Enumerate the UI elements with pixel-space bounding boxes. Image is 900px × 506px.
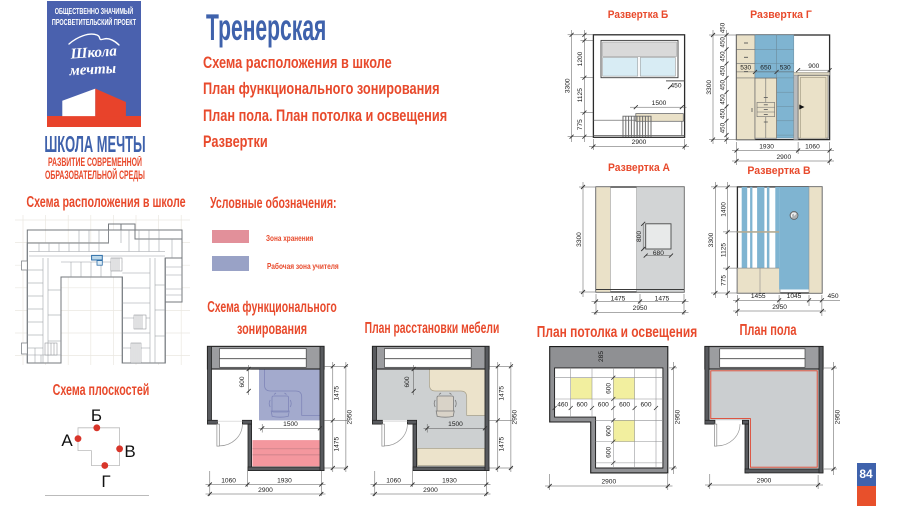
svg-text:600: 600: [404, 376, 411, 387]
svg-text:285: 285: [598, 351, 605, 362]
svg-text:600: 600: [239, 376, 246, 387]
svg-text:1475: 1475: [499, 386, 506, 401]
svg-text:775: 775: [577, 119, 584, 130]
svg-text:1060: 1060: [221, 477, 236, 484]
svg-text:1475: 1475: [334, 386, 341, 401]
svg-text:450: 450: [719, 79, 726, 90]
svg-text:450: 450: [719, 108, 726, 119]
svg-text:530: 530: [780, 65, 791, 72]
svg-text:1475: 1475: [611, 296, 626, 303]
svg-text:1500: 1500: [283, 421, 298, 428]
svg-text:1125: 1125: [577, 88, 584, 103]
svg-text:мечты: мечты: [68, 61, 116, 79]
svg-text:680: 680: [653, 250, 664, 257]
svg-text:1455: 1455: [751, 293, 766, 300]
svg-text:1200: 1200: [577, 51, 584, 66]
svg-text:450: 450: [719, 94, 726, 105]
svg-text:600: 600: [605, 383, 612, 394]
svg-text:2950: 2950: [835, 409, 842, 424]
svg-text:2900: 2900: [601, 479, 616, 486]
svg-text:450: 450: [827, 293, 838, 300]
svg-text:800: 800: [636, 231, 643, 242]
svg-text:450: 450: [670, 83, 681, 90]
svg-text:2950: 2950: [347, 409, 354, 424]
svg-text:1045: 1045: [787, 293, 802, 300]
svg-text:1930: 1930: [442, 477, 457, 484]
svg-text:3300: 3300: [706, 80, 713, 95]
svg-text:2950: 2950: [512, 409, 519, 424]
svg-text:3300: 3300: [576, 232, 583, 247]
svg-text:2900: 2900: [423, 487, 438, 494]
svg-text:2900: 2900: [632, 139, 647, 146]
svg-text:1930: 1930: [759, 143, 774, 150]
svg-text:2950: 2950: [633, 305, 648, 312]
svg-text:1125: 1125: [721, 243, 728, 258]
svg-text:1500: 1500: [652, 100, 667, 107]
svg-text:3300: 3300: [708, 232, 715, 247]
svg-text:600: 600: [640, 402, 651, 409]
svg-text:600: 600: [605, 425, 612, 436]
svg-text:650: 650: [760, 65, 771, 72]
svg-text:600: 600: [598, 402, 609, 409]
svg-text:1930: 1930: [277, 477, 292, 484]
svg-text:450: 450: [719, 122, 726, 133]
svg-text:1475: 1475: [334, 437, 341, 452]
svg-text:450: 450: [719, 22, 726, 33]
svg-text:1475: 1475: [655, 296, 670, 303]
svg-text:1475: 1475: [499, 437, 506, 452]
svg-text:600: 600: [576, 402, 587, 409]
svg-text:В: В: [124, 442, 135, 461]
svg-text:3300: 3300: [564, 78, 571, 93]
svg-text:2900: 2900: [258, 487, 273, 494]
svg-text:2900: 2900: [757, 478, 772, 485]
svg-text:900: 900: [808, 63, 819, 70]
svg-text:1500: 1500: [448, 421, 463, 428]
svg-text:775: 775: [721, 275, 728, 286]
svg-text:460: 460: [557, 402, 568, 409]
svg-text:530: 530: [740, 65, 751, 72]
svg-text:2950: 2950: [772, 304, 787, 311]
svg-text:450: 450: [719, 65, 726, 76]
svg-text:Г: Г: [101, 472, 110, 491]
svg-text:1060: 1060: [386, 477, 401, 484]
svg-text:1060: 1060: [805, 143, 820, 150]
svg-text:1400: 1400: [721, 202, 728, 217]
svg-text:450: 450: [719, 51, 726, 62]
svg-text:Школа: Школа: [69, 43, 118, 62]
svg-text:600: 600: [605, 446, 612, 457]
svg-text:2950: 2950: [675, 409, 682, 424]
svg-text:Б: Б: [91, 406, 102, 425]
svg-text:450: 450: [719, 37, 726, 48]
svg-text:А: А: [61, 431, 73, 450]
svg-text:600: 600: [619, 402, 630, 409]
